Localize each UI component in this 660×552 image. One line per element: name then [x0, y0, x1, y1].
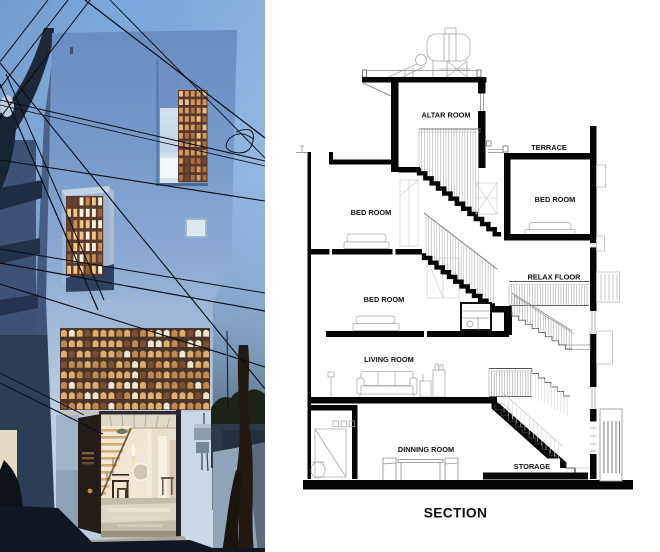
svg-text:DINNING ROOM: DINNING ROOM [398, 445, 454, 454]
svg-text:LIVING ROOM: LIVING ROOM [364, 355, 414, 364]
svg-text:SECTION: SECTION [424, 506, 487, 521]
svg-text:STORAGE: STORAGE [514, 462, 550, 471]
svg-text:BED ROOM: BED ROOM [351, 208, 392, 217]
svg-text:TERRACE: TERRACE [531, 143, 567, 152]
svg-text:BED ROOM: BED ROOM [364, 295, 405, 304]
svg-text:ALTAR ROOM: ALTAR ROOM [422, 111, 471, 120]
svg-text:BED ROOM: BED ROOM [535, 195, 576, 204]
svg-text:RELAX FLOOR: RELAX FLOOR [528, 273, 582, 282]
